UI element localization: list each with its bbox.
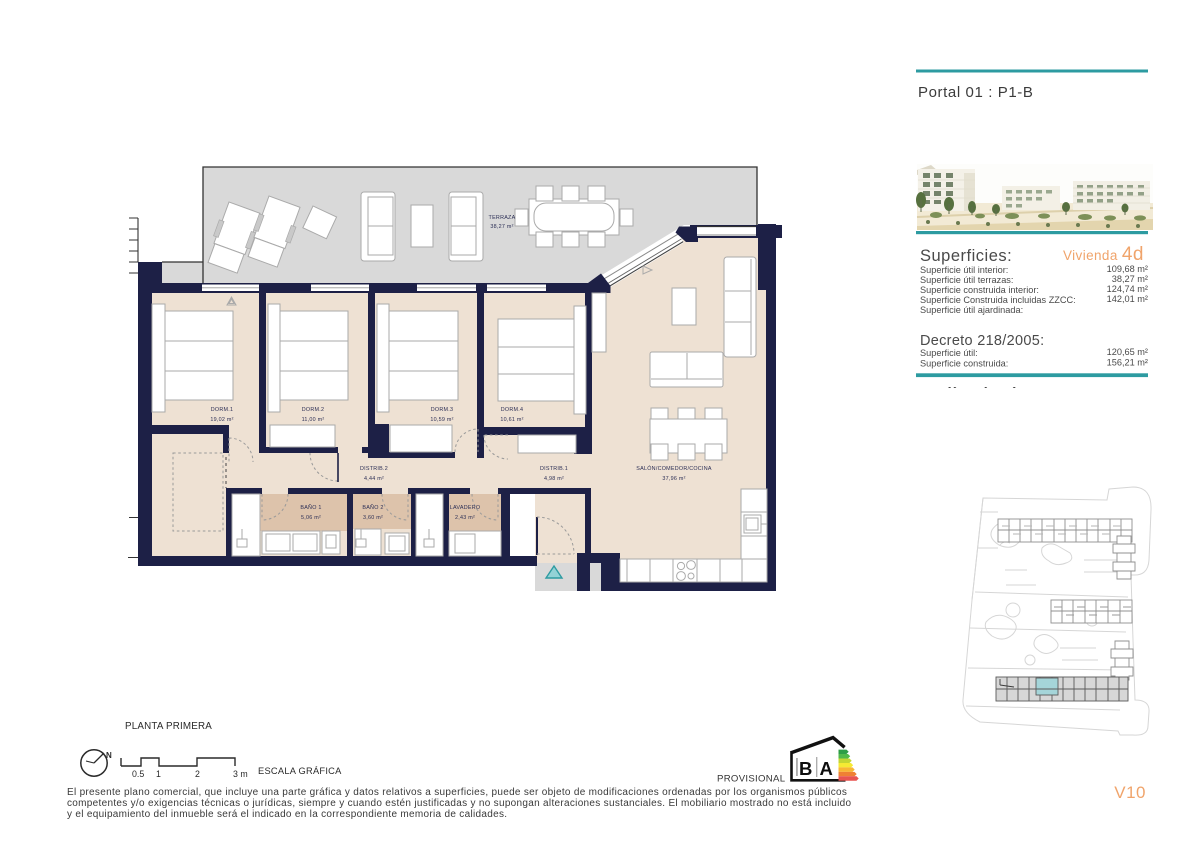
svg-text:TERRAZA: TERRAZA xyxy=(489,215,516,221)
svg-text:37,96 m²: 37,96 m² xyxy=(662,476,685,482)
svg-text:3,60 m²: 3,60 m² xyxy=(363,515,383,521)
svg-text:BAÑO 2: BAÑO 2 xyxy=(362,504,383,511)
svg-text:PROVISIONAL: PROVISIONAL xyxy=(717,774,786,785)
svg-text:y el equipamiento del inmueble: y el equipamiento del inmueble será el i… xyxy=(67,809,507,820)
svg-text:142,01 m²: 142,01 m² xyxy=(1107,294,1148,304)
svg-text:Superficies:: Superficies: xyxy=(920,247,1012,265)
svg-text:2,43 m²: 2,43 m² xyxy=(455,515,475,521)
svg-text:A: A xyxy=(820,758,833,779)
svg-text:Superficie útil interior:: Superficie útil interior: xyxy=(920,265,1008,275)
svg-text:N: N xyxy=(106,751,112,760)
svg-text:120,65 m²: 120,65 m² xyxy=(1107,347,1148,357)
svg-text:38,27 m²: 38,27 m² xyxy=(490,224,513,230)
svg-text:124,74 m²: 124,74 m² xyxy=(1107,284,1148,294)
svg-text:DORM.2: DORM.2 xyxy=(302,407,324,413)
svg-text:1: 1 xyxy=(156,769,161,779)
svg-text:competentes y/o exigencias téc: competentes y/o exigencias técnicas o ju… xyxy=(67,798,851,809)
svg-text:2: 2 xyxy=(195,769,200,779)
svg-text:DORM.4: DORM.4 xyxy=(501,407,523,413)
svg-text:Superficie construida:: Superficie construida: xyxy=(920,359,1008,369)
svg-text:Portal 01 : P1-B: Portal 01 : P1-B xyxy=(918,84,1034,101)
svg-text:ESCALA GRÁFICA: ESCALA GRÁFICA xyxy=(258,766,342,776)
svg-text:Superficie Construida incluida: Superficie Construida incluidas ZZCC: xyxy=(920,295,1076,305)
svg-text:11,00 m²: 11,00 m² xyxy=(302,417,325,423)
svg-text:SALÓN/COMEDOR/COCINA: SALÓN/COMEDOR/COCINA xyxy=(636,465,712,472)
svg-text:El presente plano comercial, q: El presente plano comercial, que incluye… xyxy=(67,787,847,798)
svg-text:4,44 m²: 4,44 m² xyxy=(364,476,384,482)
svg-text:10,61 m²: 10,61 m² xyxy=(500,417,523,423)
svg-text:5,06 m²: 5,06 m² xyxy=(301,515,321,521)
svg-text:Superficie construida interior: Superficie construida interior: xyxy=(920,285,1039,295)
svg-text:Superficie útil ajardinada:: Superficie útil ajardinada: xyxy=(920,305,1023,315)
svg-text:Superficie útil terrazas:: Superficie útil terrazas: xyxy=(920,275,1013,285)
svg-text:Superficie útil:: Superficie útil: xyxy=(920,348,978,358)
svg-text:V10: V10 xyxy=(1114,783,1146,802)
svg-text:156,21 m²: 156,21 m² xyxy=(1107,358,1148,368)
svg-text:B: B xyxy=(799,758,812,779)
svg-text:Vivienda 4d: Vivienda 4d xyxy=(1063,244,1144,265)
svg-text:19,02 m²: 19,02 m² xyxy=(210,417,233,423)
svg-text:PLANTA PRIMERA: PLANTA PRIMERA xyxy=(125,721,212,732)
svg-text:DISTRIB.1: DISTRIB.1 xyxy=(540,466,568,472)
svg-text:3 m: 3 m xyxy=(233,769,248,779)
svg-text:Decreto 218/2005:: Decreto 218/2005: xyxy=(920,333,1044,349)
svg-text:0.5: 0.5 xyxy=(132,769,144,779)
svg-text:DORM.3: DORM.3 xyxy=(431,407,453,413)
svg-text:4,98 m²: 4,98 m² xyxy=(544,476,564,482)
svg-text:DISTRIB.2: DISTRIB.2 xyxy=(360,466,388,472)
svg-text:LAVADERO: LAVADERO xyxy=(450,505,481,511)
svg-text:10,59 m²: 10,59 m² xyxy=(430,417,453,423)
svg-text:BAÑO 1: BAÑO 1 xyxy=(300,504,321,511)
svg-text:109,68 m²: 109,68 m² xyxy=(1107,264,1148,274)
svg-text:38,27 m²: 38,27 m² xyxy=(1112,274,1148,284)
svg-text:DORM.1: DORM.1 xyxy=(211,407,233,413)
